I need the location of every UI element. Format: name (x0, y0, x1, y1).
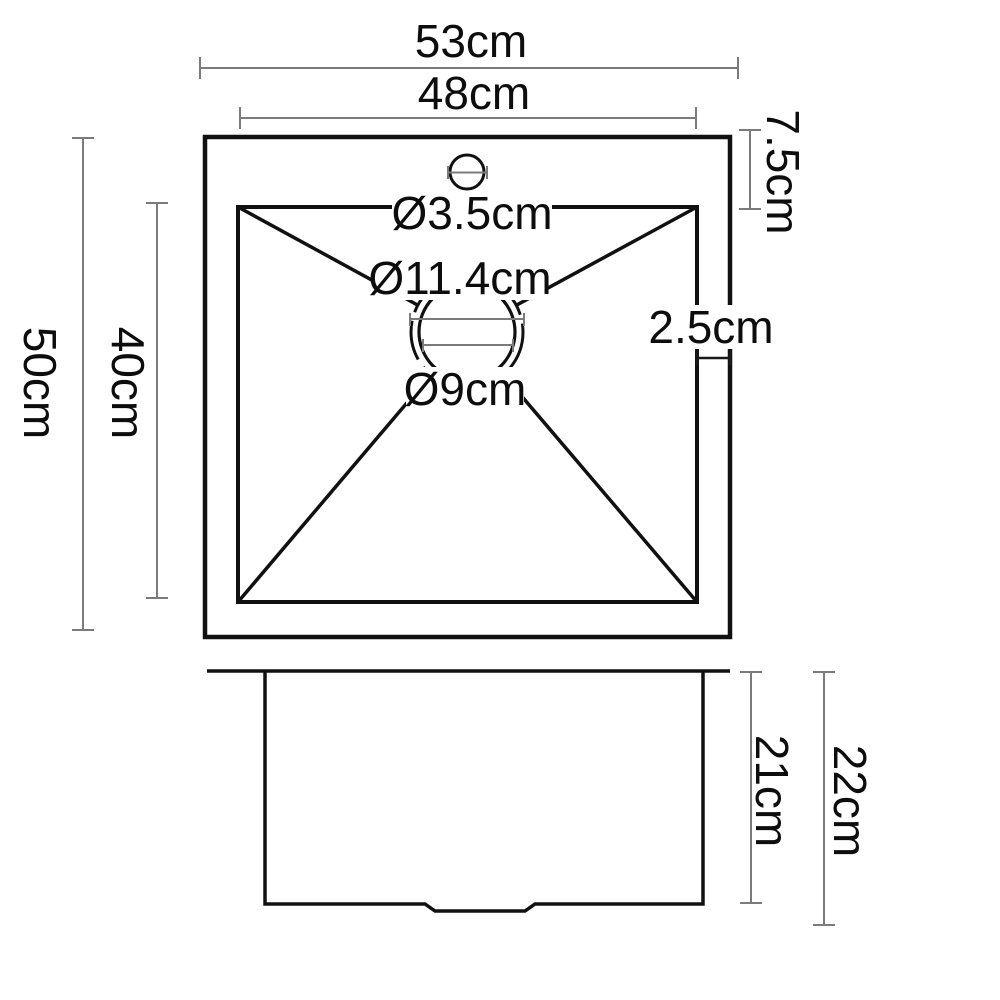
label-inner-depth: 40cm (102, 327, 154, 439)
label-rim-right-offset: 2.5cm (648, 301, 773, 353)
label-rim-top-offset: 7.5cm (757, 109, 809, 234)
label-overall-width: 53cm (415, 15, 527, 67)
label-overall-height: 22cm (824, 745, 876, 857)
diagram-canvas: 53cm 48cm 50cm 40cm 7.5cm Ø3.5cm Ø11.4cm… (0, 0, 1000, 1000)
label-inner-width: 48cm (418, 67, 530, 119)
label-drain-flange-diameter: Ø11.4cm (368, 252, 551, 304)
label-faucet-hole-diameter: Ø3.5cm (391, 187, 552, 239)
label-drain-diameter: Ø9cm (404, 363, 527, 415)
label-overall-depth: 50cm (14, 327, 66, 439)
label-bowl-depth: 21cm (746, 735, 798, 847)
sink-dimension-diagram: 53cm 48cm 50cm 40cm 7.5cm Ø3.5cm Ø11.4cm… (0, 0, 1000, 1000)
